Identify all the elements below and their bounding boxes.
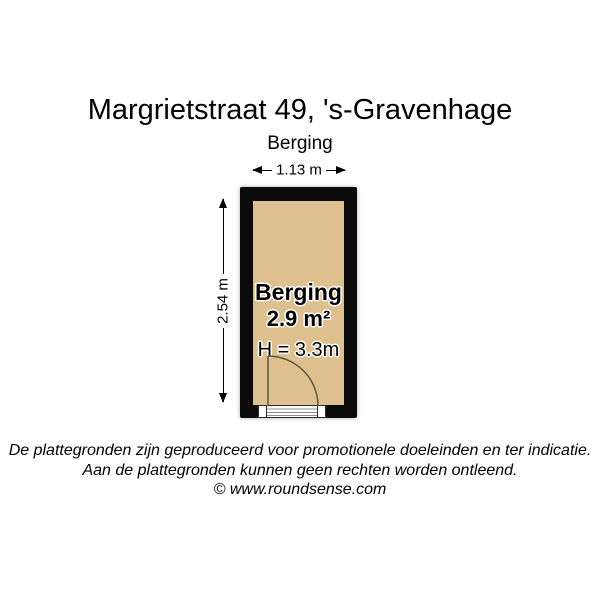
door-jamb-left	[258, 405, 267, 418]
depth-dimension-label: 2.54 m	[215, 274, 232, 328]
depth-dimension: 2.54 m	[216, 199, 230, 402]
room-walls: Berging 2.9 m² H = 3.3m	[240, 187, 357, 418]
width-dimension-label: 1.13 m	[272, 162, 326, 179]
arrow-down-icon	[219, 393, 227, 403]
footer: De plattegronden zijn geproduceerd voor …	[0, 441, 600, 500]
page-subtitle: Berging	[0, 133, 600, 154]
arrow-left-icon	[252, 166, 262, 174]
arrow-right-icon	[336, 166, 346, 174]
arrow-up-icon	[219, 198, 227, 208]
copyright: © www.roundsense.com	[0, 480, 600, 500]
room-labels: Berging 2.9 m² H = 3.3m	[240, 279, 357, 362]
disclaimer-line-1: De plattegronden zijn geproduceerd voor …	[0, 441, 600, 461]
door-sill	[266, 405, 318, 418]
disclaimer-line-2: Aan de plattegronden kunnen geen rechten…	[0, 461, 600, 481]
room-name-label: Berging	[240, 279, 357, 305]
door-threshold	[258, 405, 326, 418]
room-area-label: 2.9 m²	[240, 305, 357, 333]
page-title: Margrietstraat 49, 's-Gravenhage	[0, 94, 600, 127]
room-ceiling-height-label: H = 3.3m	[240, 338, 357, 362]
width-dimension: 1.13 m	[253, 163, 345, 177]
room-floor: Berging 2.9 m² H = 3.3m	[253, 201, 344, 405]
door-jamb-right	[317, 405, 326, 418]
